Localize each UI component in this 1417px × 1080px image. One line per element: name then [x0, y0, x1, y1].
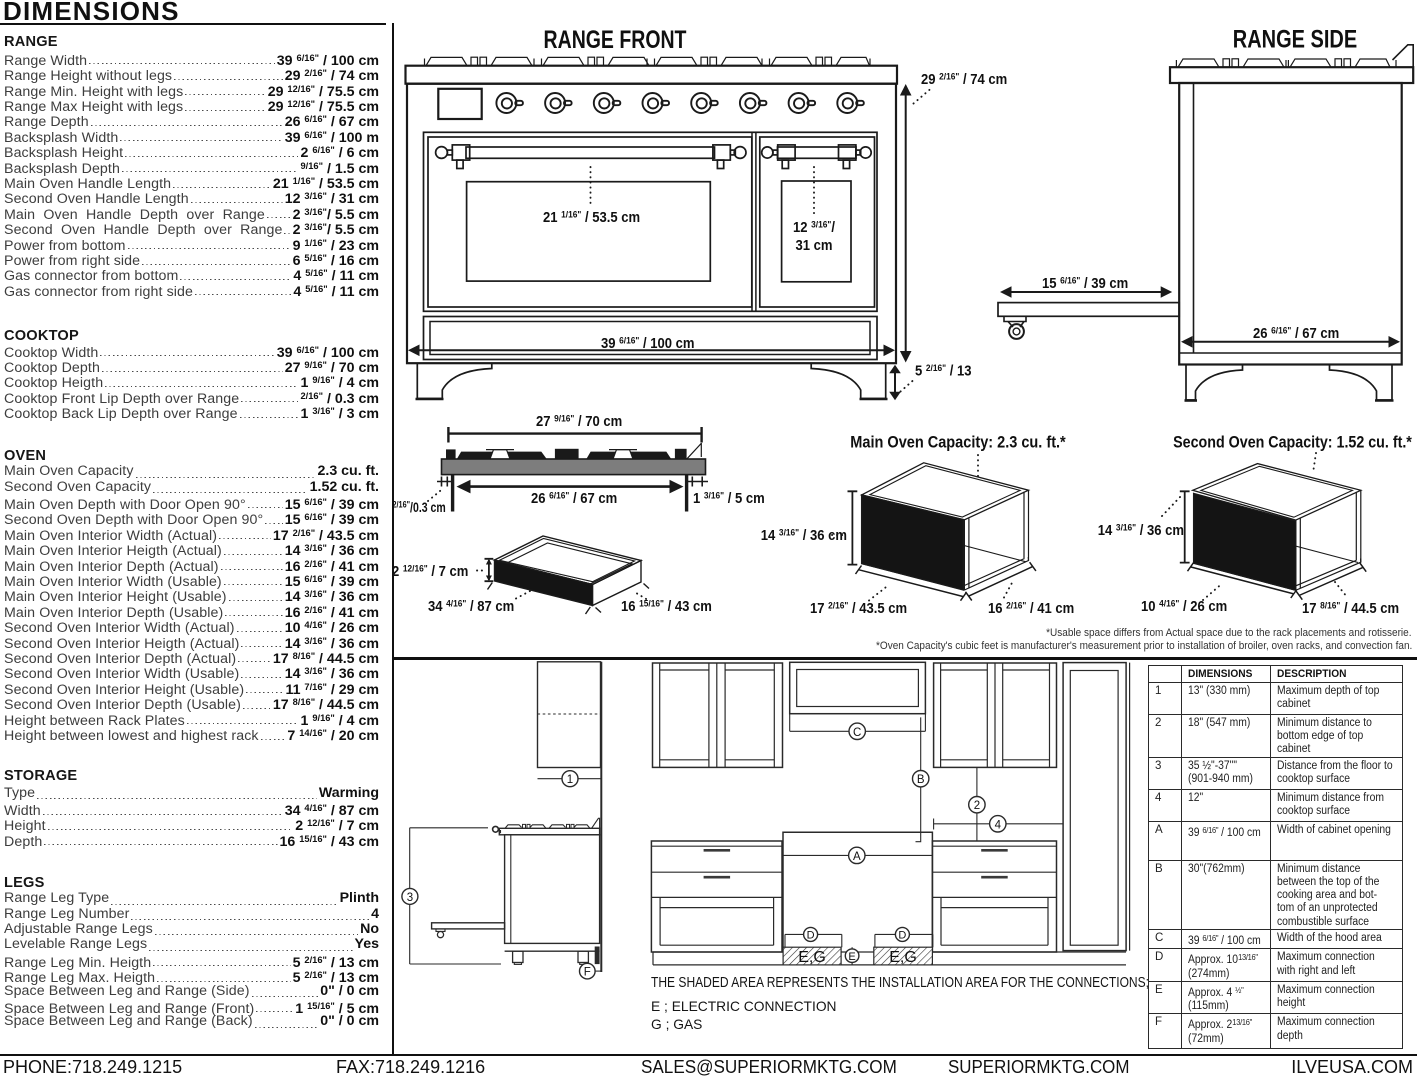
svg-text:27 9/16" / 70 cm: 27 9/16" / 70 cm — [536, 413, 622, 429]
svg-text:26 6/16" / 67 cm: 26 6/16" / 67 cm — [531, 490, 617, 506]
svg-text:RANGE SIDE: RANGE SIDE — [1233, 25, 1357, 53]
svg-text:Main Oven Capacity: 2.3 cu. ft: Main Oven Capacity: 2.3 cu. ft.* — [850, 434, 1066, 452]
svg-text:B: B — [917, 774, 925, 786]
svg-text:F: F — [584, 967, 591, 979]
svg-text:10 4/16" / 26 cm: 10 4/16" / 26 cm — [1141, 598, 1227, 614]
svg-text:3: 3 — [407, 892, 413, 904]
svg-text:4: 4 — [995, 819, 1002, 831]
svg-text:5 2/16" / 13: 5 2/16" / 13 — [915, 363, 972, 379]
svg-text:2: 2 — [974, 800, 980, 812]
svg-text:C: C — [853, 727, 861, 739]
svg-text:31 cm: 31 cm — [796, 237, 833, 253]
svg-text:15 6/16" / 39 cm: 15 6/16" / 39 cm — [1042, 275, 1128, 291]
svg-text:D: D — [807, 930, 815, 942]
svg-text:12 3/16"/: 12 3/16"/ — [793, 219, 835, 235]
svg-text:1 3/16" / 5 cm: 1 3/16" / 5 cm — [693, 490, 765, 506]
svg-text:D: D — [898, 930, 906, 942]
svg-text:RANGE FRONT: RANGE FRONT — [544, 26, 687, 54]
svg-text:E,G: E,G — [798, 949, 826, 966]
svg-text:26 6/16" / 67 cm: 26 6/16" / 67 cm — [1253, 325, 1339, 341]
svg-text:1: 1 — [567, 774, 573, 786]
svg-text:29 2/16" / 74 cm: 29 2/16" / 74 cm — [921, 71, 1007, 87]
svg-text:17 2/16" / 43.5 cm: 17 2/16" / 43.5 cm — [810, 600, 907, 616]
svg-text:2/16"/0.3 cm: 2/16"/0.3 cm — [393, 499, 446, 516]
svg-text:21 1/16" / 53.5 cm: 21 1/16" / 53.5 cm — [543, 209, 640, 225]
svg-text:17 8/16" / 44.5 cm: 17 8/16" / 44.5 cm — [1302, 600, 1399, 616]
svg-text:16 15/16" / 43 cm: 16 15/16" / 43 cm — [621, 598, 712, 614]
svg-text:2 12/16" / 7 cm: 2 12/16" / 7 cm — [392, 563, 468, 579]
svg-text:16 2/16" / 41 cm: 16 2/16" / 41 cm — [988, 600, 1074, 616]
svg-text:39 6/16" / 100 cm: 39 6/16" / 100 cm — [601, 335, 694, 351]
svg-text:14 3/16" / 36 cm: 14 3/16" / 36 cm — [761, 527, 847, 543]
svg-text:E: E — [848, 951, 855, 963]
svg-text:14 3/16" / 36 cm: 14 3/16" / 36 cm — [1098, 522, 1184, 538]
svg-text:E,G: E,G — [889, 949, 917, 966]
svg-text:34 4/16" / 87 cm: 34 4/16" / 87 cm — [428, 598, 514, 614]
svg-text:A: A — [853, 851, 861, 863]
svg-text:Second Oven Capacity: 1.52 cu.: Second Oven Capacity: 1.52 cu. ft.* — [1173, 433, 1413, 451]
